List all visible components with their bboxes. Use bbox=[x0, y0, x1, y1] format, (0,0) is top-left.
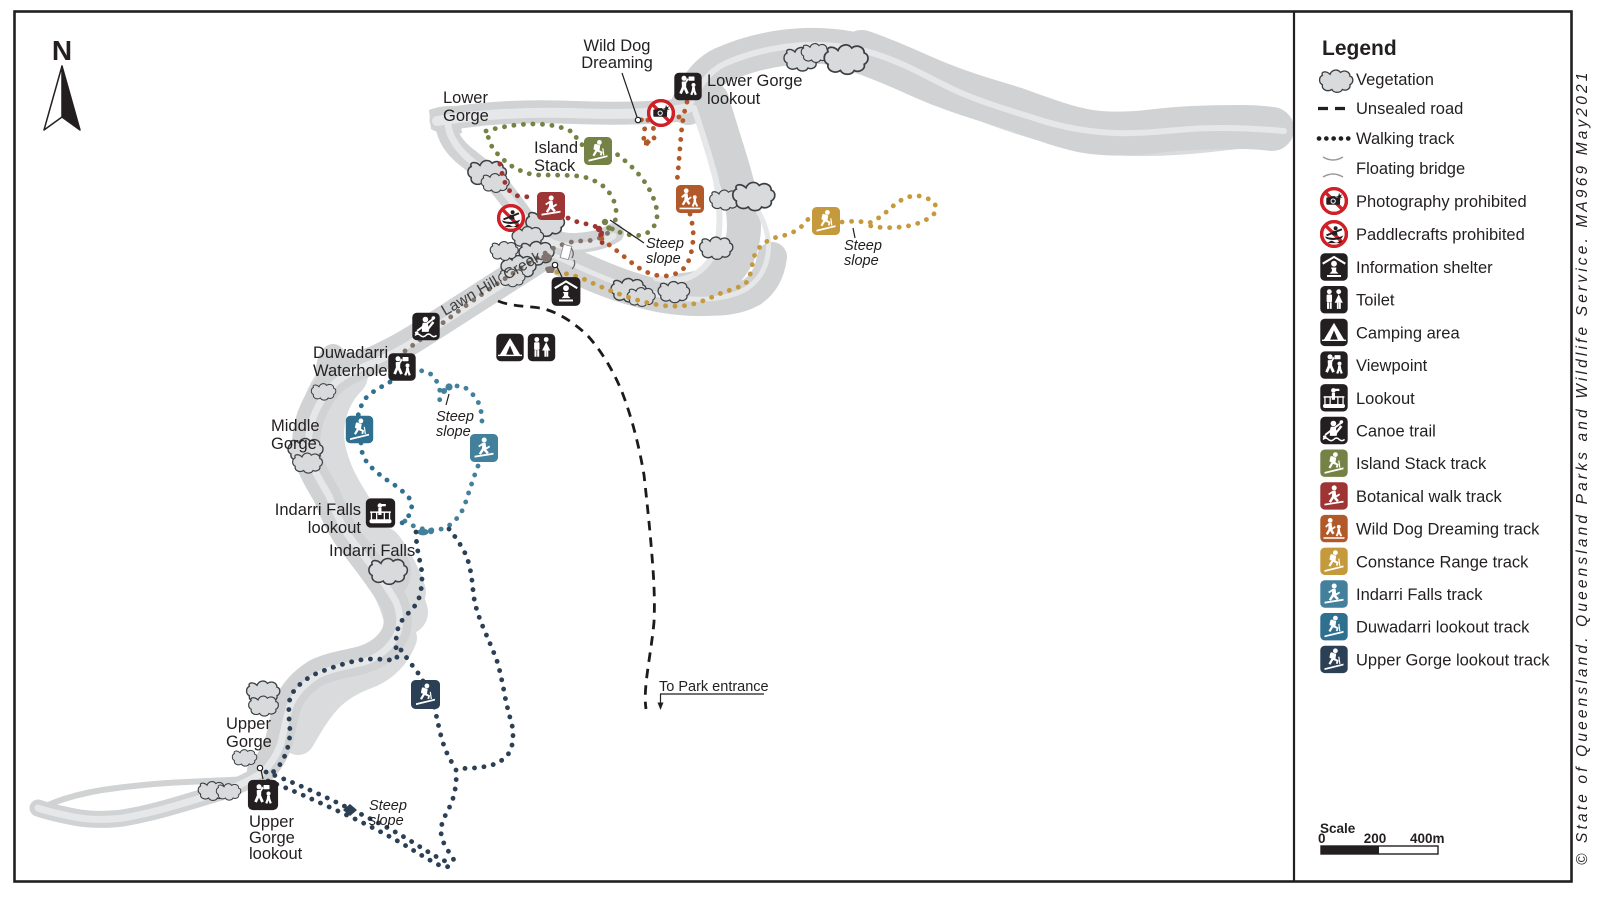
svg-text:Steep: Steep bbox=[436, 409, 474, 425]
svg-text:Waterhole: Waterhole bbox=[313, 362, 388, 380]
svg-text:Wild Dog Dreaming track: Wild Dog Dreaming track bbox=[1356, 521, 1540, 539]
svg-text:Legend: Legend bbox=[1322, 37, 1397, 60]
svg-text:Steep: Steep bbox=[369, 798, 407, 814]
svg-text:Vegetation: Vegetation bbox=[1356, 71, 1434, 89]
svg-text:Constance Range track: Constance Range track bbox=[1356, 553, 1529, 571]
svg-text:Information shelter: Information shelter bbox=[1356, 259, 1493, 277]
svg-text:Camping area: Camping area bbox=[1356, 324, 1460, 342]
svg-text:To Park entrance: To Park entrance bbox=[659, 679, 769, 695]
svg-text:slope: slope bbox=[844, 253, 879, 269]
svg-text:slope: slope bbox=[646, 251, 681, 267]
svg-text:Island Stack track: Island Stack track bbox=[1356, 455, 1487, 473]
svg-text:N: N bbox=[52, 35, 72, 66]
svg-text:Wild Dog: Wild Dog bbox=[584, 37, 651, 55]
svg-text:Duwadarri lookout track: Duwadarri lookout track bbox=[1356, 619, 1530, 637]
svg-text:Lower Gorge: Lower Gorge bbox=[707, 72, 802, 90]
svg-text:Lookout: Lookout bbox=[1356, 390, 1415, 408]
svg-text:Indarri Falls: Indarri Falls bbox=[275, 501, 361, 519]
svg-text:Steep: Steep bbox=[844, 238, 882, 254]
svg-text:Viewpoint: Viewpoint bbox=[1356, 357, 1428, 375]
svg-text:Photography prohibited: Photography prohibited bbox=[1356, 193, 1527, 211]
svg-text:slope: slope bbox=[369, 813, 404, 829]
svg-text:Island: Island bbox=[534, 139, 578, 157]
svg-text:Indarri Falls track: Indarri Falls track bbox=[1356, 586, 1483, 604]
svg-text:Floating bridge: Floating bridge bbox=[1356, 160, 1465, 178]
svg-text:Unsealed road: Unsealed road bbox=[1356, 100, 1463, 118]
svg-text:Gorge: Gorge bbox=[226, 733, 272, 751]
svg-text:Walking track: Walking track bbox=[1356, 130, 1455, 148]
svg-text:Dreaming: Dreaming bbox=[581, 54, 653, 72]
svg-text:Canoe trail: Canoe trail bbox=[1356, 423, 1436, 441]
svg-text:Steep: Steep bbox=[646, 236, 684, 252]
svg-text:Botanical walk track: Botanical walk track bbox=[1356, 488, 1503, 506]
svg-text:Gorge: Gorge bbox=[271, 435, 317, 453]
svg-text:Paddlecrafts prohibited: Paddlecrafts prohibited bbox=[1356, 226, 1525, 244]
svg-text:lookout: lookout bbox=[308, 519, 362, 537]
svg-text:lookout: lookout bbox=[249, 845, 303, 863]
svg-text:Duwadarri: Duwadarri bbox=[313, 344, 388, 362]
svg-text:lookout: lookout bbox=[707, 90, 761, 108]
svg-text:Lower: Lower bbox=[443, 89, 488, 107]
svg-text:Middle: Middle bbox=[271, 417, 320, 435]
svg-text:Stack: Stack bbox=[534, 157, 576, 175]
svg-text:Upper: Upper bbox=[226, 715, 271, 733]
svg-text:Indarri Falls: Indarri Falls bbox=[329, 542, 415, 560]
svg-text:© State of Queensland. Queensl: © State of Queensland. Queensland Parks … bbox=[1574, 69, 1591, 865]
svg-text:0: 0 bbox=[1318, 831, 1326, 846]
svg-text:400m: 400m bbox=[1410, 831, 1445, 846]
svg-text:Toilet: Toilet bbox=[1356, 292, 1395, 310]
svg-text:Gorge: Gorge bbox=[443, 107, 489, 125]
svg-text:200: 200 bbox=[1364, 831, 1387, 846]
svg-text:slope: slope bbox=[436, 424, 471, 440]
svg-text:Upper Gorge lookout track: Upper Gorge lookout track bbox=[1356, 651, 1550, 669]
